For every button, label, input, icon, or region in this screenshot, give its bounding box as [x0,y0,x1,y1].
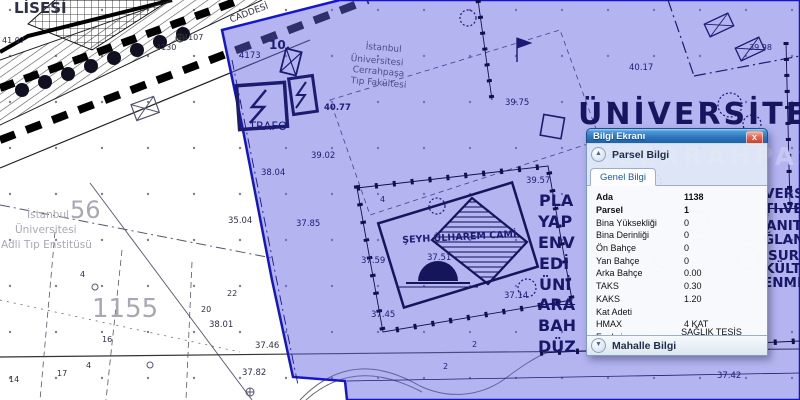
attribute-value: 0 [684,243,689,253]
attribute-row: Ön Bahçe0 [587,242,767,255]
window-body: ▲ Parsel Bilgi Genel Bilgi Ada1138Parsel… [586,143,768,356]
attribute-value: 0 [684,230,689,240]
attribute-value: 1 [684,205,689,215]
window-titlebar[interactable]: Bilgi Ekranı x [586,128,768,144]
attribute-value: 0.30 [684,281,702,291]
attribute-row: KAKS1.20 [587,293,767,306]
attribute-row: Kat Adeti [587,305,767,318]
collapse-icon[interactable]: ▲ [591,147,606,162]
attribute-label: Kat Adeti [587,307,684,317]
attribute-label: Bina Yüksekliği [587,218,684,228]
attribute-value: 0.00 [684,268,702,278]
attribute-label: Arka Bahçe [587,268,684,278]
attribute-value: 0 [684,256,689,266]
attribute-label: TAKS [587,281,684,291]
attribute-row: Bina Derinliği0 [587,229,767,242]
tab-bar: Genel Bilgi [587,166,767,186]
attribute-label: Yan Bahçe [587,256,684,266]
attribute-row: Yan Bahçe0 [587,254,767,267]
attribute-row: Parsel1 [587,204,767,217]
attribute-label: Parsel [587,205,684,215]
expand-icon[interactable]: ▼ [591,338,606,353]
parcel-attribute-grid: Ada1138Parsel1Bina Yüksekliği0Bina Derin… [587,186,767,349]
attribute-value: 0 [684,218,689,228]
attribute-label: KAKS [587,294,684,304]
attribute-row: Ada1138 [587,191,767,204]
section-mahalle-bilgi[interactable]: ▼ Mahalle Bilgi [587,335,767,355]
attribute-row: Arka Bahçe0.00 [587,267,767,280]
section-parsel-bilgi[interactable]: ▲ Parsel Bilgi [587,143,767,164]
attribute-label: Bina Derinliği [587,230,684,240]
attribute-row: Bina Yüksekliği0 [587,216,767,229]
attribute-label: Ada [587,192,684,202]
attribute-label: Ön Bahçe [587,243,684,253]
attribute-value: 1138 [684,192,704,202]
map-viewer[interactable]: LİSESİCADDESİ41.0741074130417310.TRAFOİs… [0,0,800,400]
window-title: Bilgi Ekranı [593,131,645,142]
tab-genel-bilgi[interactable]: Genel Bilgi [590,168,656,186]
attribute-value: 1.20 [684,294,702,304]
info-window[interactable]: Bilgi Ekranı x ▲ Parsel Bilgi Genel Bilg… [586,128,768,356]
attribute-label: HMAX [587,319,684,329]
attribute-row: TAKS0.30 [587,280,767,293]
